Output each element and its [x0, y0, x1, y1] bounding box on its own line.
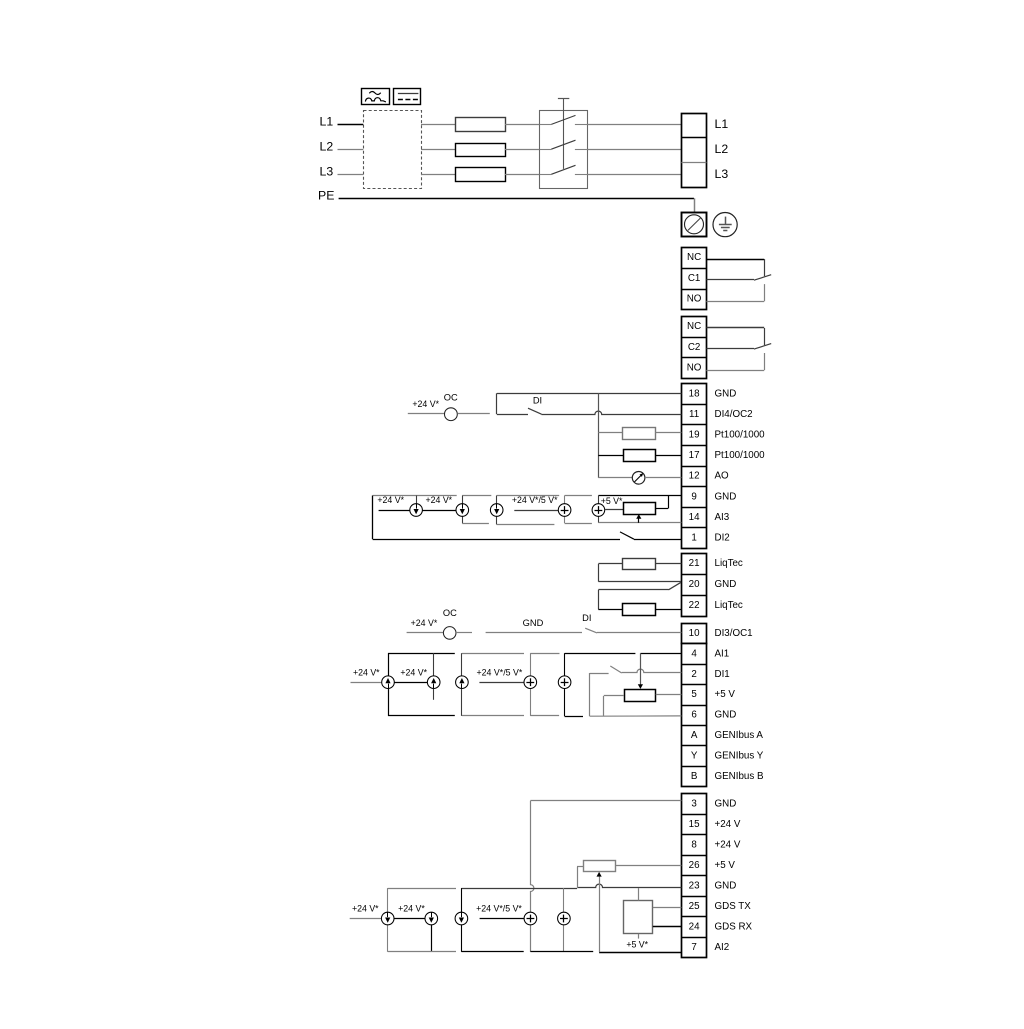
- svg-text:L3: L3: [715, 167, 729, 181]
- svg-text:OC: OC: [444, 393, 458, 403]
- svg-text:23: 23: [689, 880, 700, 891]
- svg-text:+5 V*: +5 V*: [626, 939, 648, 949]
- svg-text:14: 14: [689, 512, 700, 523]
- svg-text:4: 4: [691, 648, 697, 659]
- svg-text:25: 25: [689, 901, 700, 912]
- svg-text:+24 V*/5 V*: +24 V*/5 V*: [512, 495, 558, 505]
- svg-text:DI: DI: [533, 396, 542, 406]
- svg-text:11: 11: [689, 409, 699, 420]
- svg-text:20: 20: [689, 579, 700, 590]
- svg-text:+24 V*: +24 V*: [411, 618, 438, 628]
- svg-text:9: 9: [691, 491, 696, 502]
- svg-text:GND: GND: [715, 798, 737, 809]
- svg-text:+24 V*: +24 V*: [425, 495, 452, 505]
- svg-text:15: 15: [689, 819, 700, 830]
- svg-text:GND: GND: [715, 880, 737, 891]
- svg-text:GND: GND: [715, 388, 737, 399]
- svg-text:+24 V*: +24 V*: [352, 904, 379, 914]
- svg-text:19: 19: [689, 430, 700, 441]
- svg-text:C1: C1: [688, 273, 701, 284]
- svg-text:DI4/OC2: DI4/OC2: [715, 409, 753, 420]
- svg-text:18: 18: [689, 388, 700, 399]
- svg-text:B: B: [691, 771, 698, 782]
- svg-text:Pt100/1000: Pt100/1000: [715, 430, 766, 441]
- svg-text:LiqTec: LiqTec: [715, 600, 743, 611]
- svg-text:GENIbus B: GENIbus B: [715, 771, 764, 782]
- svg-text:3: 3: [691, 798, 697, 809]
- svg-text:+5 V*: +5 V*: [601, 496, 623, 506]
- svg-text:GND: GND: [523, 618, 544, 628]
- svg-text:DI3/OC1: DI3/OC1: [715, 628, 753, 639]
- svg-text:24: 24: [689, 921, 700, 932]
- svg-text:GND: GND: [715, 491, 737, 502]
- svg-text:+5 V: +5 V: [715, 860, 736, 871]
- svg-text:6: 6: [691, 710, 697, 721]
- svg-text:NC: NC: [687, 252, 701, 263]
- svg-text:+24 V: +24 V: [715, 819, 741, 830]
- svg-text:+24 V: +24 V: [715, 839, 741, 850]
- svg-text:2: 2: [691, 669, 696, 680]
- svg-text:NO: NO: [687, 294, 702, 305]
- svg-text:GENIbus A: GENIbus A: [715, 730, 764, 741]
- svg-text:Y: Y: [691, 750, 698, 761]
- svg-text:+24 V*: +24 V*: [412, 399, 439, 409]
- svg-text:GDS TX: GDS TX: [715, 901, 752, 912]
- svg-text:+24 V*: +24 V*: [377, 495, 404, 505]
- svg-text:+24 V*: +24 V*: [398, 904, 425, 914]
- svg-text:L2: L2: [715, 142, 729, 156]
- svg-text:22: 22: [689, 600, 700, 611]
- svg-text:OC: OC: [443, 608, 457, 618]
- svg-text:L3: L3: [320, 164, 334, 178]
- svg-text:AO: AO: [715, 471, 730, 482]
- svg-text:26: 26: [689, 860, 700, 871]
- svg-text:PE: PE: [318, 188, 334, 202]
- svg-text:DI: DI: [582, 613, 591, 623]
- svg-text:+5 V: +5 V: [715, 689, 736, 700]
- svg-text:GND: GND: [715, 579, 737, 590]
- svg-text:C2: C2: [688, 342, 701, 353]
- svg-text:LiqTec: LiqTec: [715, 558, 743, 569]
- svg-text:GND: GND: [715, 710, 737, 721]
- svg-text:Pt100/1000: Pt100/1000: [715, 450, 766, 461]
- svg-text:NO: NO: [687, 363, 702, 374]
- svg-text:+24 V*/5 V*: +24 V*/5 V*: [477, 667, 523, 677]
- svg-text:L1: L1: [715, 117, 729, 131]
- svg-text:GENIbus Y: GENIbus Y: [715, 750, 764, 761]
- svg-text:1: 1: [691, 533, 696, 544]
- svg-text:12: 12: [689, 471, 700, 482]
- svg-text:AI3: AI3: [715, 512, 730, 523]
- svg-text:L1: L1: [320, 115, 334, 129]
- svg-text:+24 V*/5 V*: +24 V*/5 V*: [476, 904, 522, 914]
- svg-text:AI1: AI1: [715, 648, 730, 659]
- svg-text:+24 V*: +24 V*: [353, 667, 380, 677]
- svg-text:NC: NC: [687, 321, 701, 332]
- svg-text:AI2: AI2: [715, 942, 730, 953]
- svg-text:+24 V*: +24 V*: [400, 667, 427, 677]
- svg-text:21: 21: [689, 558, 700, 569]
- svg-text:DI1: DI1: [715, 669, 730, 680]
- svg-text:GDS RX: GDS RX: [715, 921, 753, 932]
- svg-text:8: 8: [691, 839, 697, 850]
- svg-text:5: 5: [691, 689, 697, 700]
- svg-text:DI2: DI2: [715, 533, 730, 544]
- svg-text:A: A: [691, 730, 698, 741]
- svg-text:7: 7: [691, 942, 696, 953]
- svg-text:10: 10: [689, 628, 700, 639]
- svg-text:17: 17: [689, 450, 700, 461]
- svg-text:L2: L2: [320, 139, 334, 153]
